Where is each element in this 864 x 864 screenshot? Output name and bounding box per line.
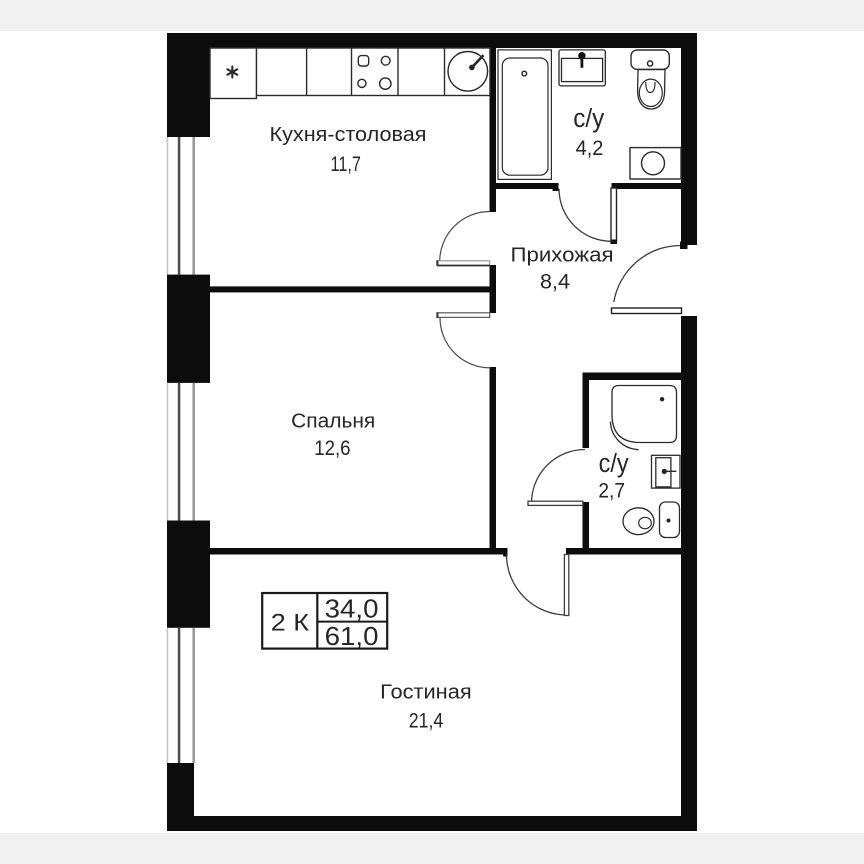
svg-text:Спальня: Спальня — [291, 410, 375, 432]
svg-text:34,0: 34,0 — [325, 593, 379, 623]
svg-text:с/у: с/у — [573, 105, 604, 133]
svg-text:Прихожая: Прихожая — [511, 244, 614, 266]
svg-text:Кухня-столовая: Кухня-столовая — [270, 124, 427, 146]
svg-text:8,4: 8,4 — [540, 270, 570, 293]
svg-text:с/у: с/у — [599, 450, 629, 478]
svg-text:2 К: 2 К — [271, 609, 309, 636]
svg-text:21,4: 21,4 — [409, 710, 444, 733]
svg-text:4,2: 4,2 — [576, 137, 604, 160]
svg-text:Гостиная: Гостиная — [380, 681, 472, 703]
svg-text:61,0: 61,0 — [325, 621, 379, 651]
svg-text:12,6: 12,6 — [314, 437, 350, 460]
svg-text:11,7: 11,7 — [331, 153, 361, 176]
svg-text:2,7: 2,7 — [598, 480, 625, 503]
